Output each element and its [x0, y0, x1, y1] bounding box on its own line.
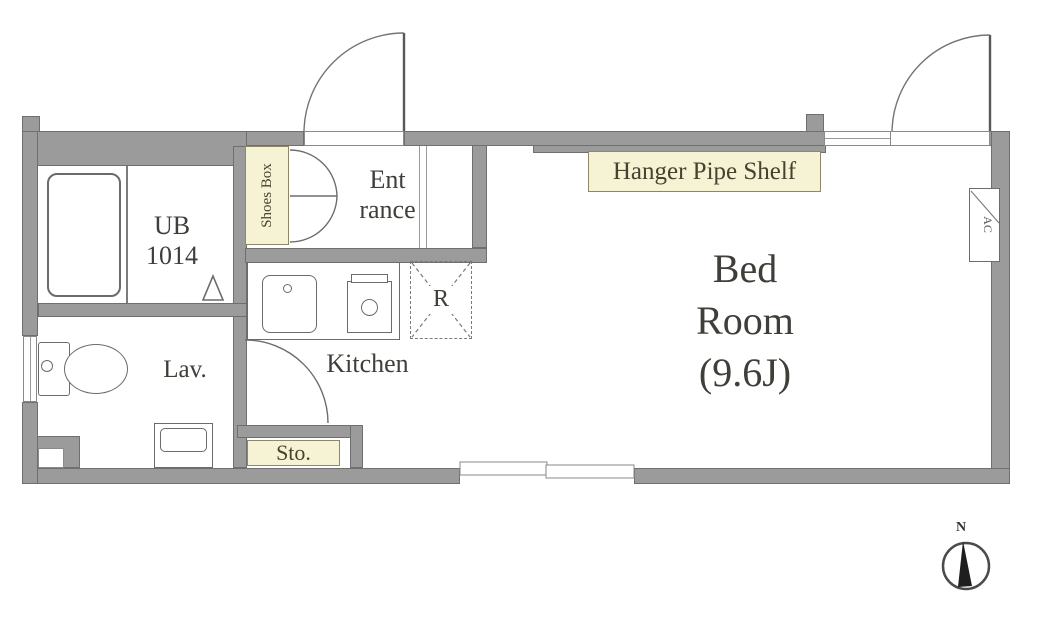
- wall-ub-top-thick: [22, 131, 247, 166]
- wall-ub-lav-divider: [38, 303, 247, 317]
- bedroom-label-line1: Bed: [696, 243, 794, 295]
- entrance-label: Ent rance: [325, 155, 450, 235]
- ub-partition-line: [126, 166, 128, 303]
- refrigerator-label: R: [426, 286, 456, 314]
- entrance-door-arc: [304, 33, 404, 131]
- bedroom-label-line3: (9.6J): [696, 347, 794, 399]
- stove-burner: [361, 299, 378, 316]
- left-wall-window: [23, 336, 37, 402]
- wall-left-upper: [22, 131, 38, 336]
- hanger-pipe-shelf-label: Hanger Pipe Shelf: [613, 158, 796, 186]
- floor-plan: Shoes Box Hanger Pipe Shelf Sto. AC UB 1…: [0, 0, 1046, 627]
- ac-unit: AC: [969, 188, 1000, 262]
- refrigerator-label-text: R: [433, 286, 449, 314]
- washer-pan-inner: [160, 428, 207, 452]
- window-mid-line: [30, 337, 31, 401]
- bottom-window-pane-right: [546, 465, 634, 478]
- lav-label-text: Lav.: [163, 356, 207, 385]
- wall-bottom-left-segment: [22, 468, 460, 484]
- compass-north-label: N: [948, 518, 974, 538]
- storage: Sto.: [247, 440, 340, 466]
- compass-north-text: N: [956, 520, 966, 536]
- ub-room-label: UB 1014: [132, 208, 212, 274]
- bedroom-label: Bed Room (9.6J): [650, 238, 840, 403]
- window-mid-line: [825, 138, 891, 139]
- wall-left-lower: [22, 402, 38, 484]
- balcony-door-threshold: [890, 131, 990, 146]
- pipe-space-niche: [38, 448, 64, 468]
- wall-entrance-right: [472, 145, 487, 248]
- bottom-window-pane-left: [460, 462, 547, 475]
- shoes-box: Shoes Box: [245, 146, 289, 245]
- ac-label: AC: [980, 216, 995, 233]
- hanger-pipe-shelf: Hanger Pipe Shelf: [588, 151, 821, 192]
- compass-circle: [943, 543, 989, 589]
- top-wall-window: [824, 131, 892, 146]
- wall-storage-right: [350, 425, 363, 468]
- kitchen-label-text: Kitchen: [326, 349, 408, 379]
- wall-top-middle: [404, 131, 826, 146]
- entrance-label-line1: Ent: [359, 165, 415, 195]
- wall-right: [991, 131, 1010, 484]
- balcony-door-arc: [892, 35, 990, 131]
- wall-bottom-right-segment: [634, 468, 1010, 484]
- toilet-flush-knob: [41, 360, 53, 372]
- storage-label: Sto.: [276, 440, 311, 466]
- toilet-bowl: [64, 344, 128, 394]
- ub-label-line1: UB: [146, 211, 198, 241]
- entrance-door-threshold: [304, 131, 404, 146]
- kitchen-label: Kitchen: [305, 347, 430, 381]
- ub-door-marker: [203, 276, 223, 300]
- compass-needle: [958, 541, 972, 587]
- sink-faucet: [283, 284, 292, 293]
- bedroom-label-line2: Room: [696, 295, 794, 347]
- shoes-box-label: Shoes Box: [259, 163, 276, 228]
- entrance-label-line2: rance: [359, 195, 415, 225]
- lav-room-label: Lav.: [145, 354, 225, 386]
- stove-back-panel: [351, 274, 388, 283]
- wall-storage-top: [237, 425, 363, 438]
- bathtub: [47, 173, 121, 297]
- wall-top-stub: [806, 114, 824, 132]
- ub-label-line2: 1014: [146, 241, 198, 271]
